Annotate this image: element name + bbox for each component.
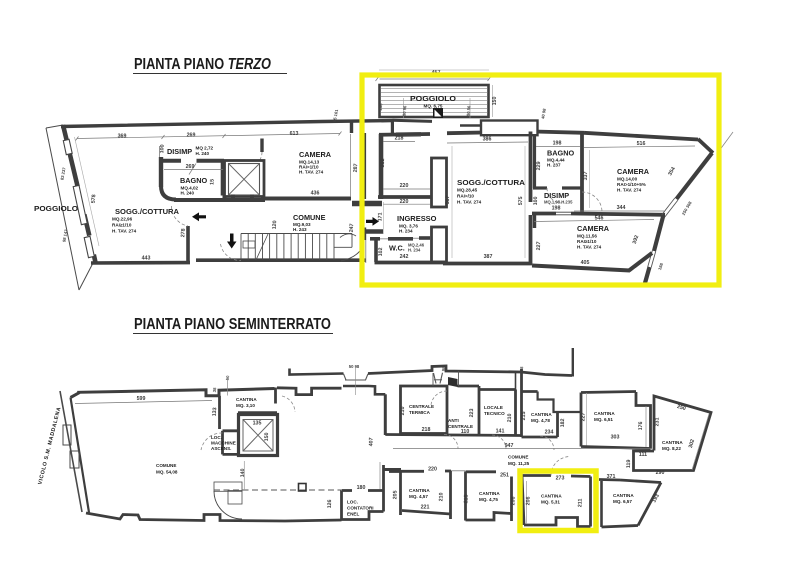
svg-text:MQ. 4,57: MQ. 4,57 [409, 494, 428, 499]
svg-text:947: 947 [505, 443, 514, 449]
svg-text:210: 210 [438, 492, 444, 501]
svg-text:SOGG./COTTURA: SOGG./COTTURA [457, 178, 526, 187]
svg-text:443: 443 [142, 256, 151, 262]
svg-text:229: 229 [536, 161, 542, 170]
svg-text:LOC.: LOC. [347, 500, 358, 505]
svg-text:269: 269 [186, 164, 195, 170]
svg-text:RAI≥1/10: RAI≥1/10 [112, 223, 132, 228]
svg-text:387: 387 [484, 254, 493, 260]
svg-text:MQ.11,56: MQ.11,56 [577, 234, 597, 239]
svg-text:578: 578 [91, 194, 98, 203]
svg-text:405: 405 [581, 260, 590, 266]
svg-text:133: 133 [212, 407, 219, 416]
svg-text:218: 218 [422, 427, 431, 433]
svg-text:MQ. 6,57: MQ. 6,57 [613, 499, 632, 504]
svg-text:126: 126 [327, 499, 333, 508]
svg-text:386: 386 [483, 137, 492, 143]
svg-text:TERMICA: TERMICA [409, 410, 431, 415]
svg-text:COMUNE: COMUNE [156, 463, 176, 468]
svg-text:ASCENS.: ASCENS. [211, 446, 231, 451]
svg-text:369: 369 [118, 134, 127, 140]
svg-text:220: 220 [428, 467, 437, 473]
svg-text:SOGG./COTTURA: SOGG./COTTURA [115, 207, 180, 216]
svg-text:205: 205 [392, 490, 398, 499]
svg-text:H. 240: H. 240 [196, 151, 210, 156]
svg-text:575: 575 [518, 196, 524, 205]
svg-text:MQ. 11,25: MQ. 11,25 [508, 461, 530, 466]
svg-text:599: 599 [137, 396, 146, 402]
svg-text:135: 135 [253, 421, 262, 427]
svg-text:140: 140 [240, 468, 246, 477]
svg-text:COMUNE: COMUNE [508, 455, 528, 460]
svg-text:H. 234: H. 234 [399, 229, 413, 234]
svg-text:80 56: 80 56 [466, 105, 472, 117]
svg-text:180: 180 [357, 485, 366, 491]
svg-text:PIANTA PIANO TERZO: PIANTA PIANO TERZO [134, 56, 271, 73]
svg-text:247: 247 [349, 223, 355, 232]
svg-text:MQ. 4,75: MQ. 4,75 [479, 497, 498, 502]
svg-text:TECNICO: TECNICO [484, 411, 505, 416]
svg-text:CAMERA: CAMERA [299, 150, 332, 159]
svg-text:MQ. 8,22: MQ. 8,22 [662, 446, 681, 451]
svg-text:15: 15 [209, 179, 215, 185]
svg-text:227: 227 [580, 412, 586, 421]
svg-text:H. 234: H. 234 [408, 248, 421, 253]
svg-text:POGGIOLO: POGGIOLO [410, 94, 456, 103]
svg-text:141: 141 [496, 429, 505, 435]
svg-text:286: 286 [378, 103, 384, 111]
svg-text:H. 240: H. 240 [181, 191, 195, 196]
svg-text:INGRESSO: INGRESSO [397, 214, 437, 223]
svg-text:MQ. 3,10: MQ. 3,10 [236, 403, 255, 408]
svg-text:218: 218 [395, 136, 404, 142]
svg-text:242: 242 [400, 254, 409, 260]
svg-text:251: 251 [500, 473, 509, 479]
svg-text:120: 120 [272, 220, 278, 229]
svg-text:H. TAV. 274: H. TAV. 274 [299, 170, 324, 175]
svg-text:50 98: 50 98 [349, 364, 360, 369]
svg-text:371: 371 [607, 474, 616, 480]
svg-text:POGGIOLO: POGGIOLO [34, 204, 78, 213]
svg-text:MQ.28,45: MQ.28,45 [457, 188, 478, 193]
svg-text:MQ. 4,78: MQ. 4,78 [531, 418, 550, 423]
svg-text:303: 303 [611, 435, 620, 441]
svg-text:CAMERA: CAMERA [577, 224, 610, 233]
svg-text:MQ. 5,31: MQ. 5,31 [541, 500, 560, 505]
svg-text:80 96: 80 96 [402, 105, 408, 117]
svg-text:176: 176 [638, 421, 644, 430]
svg-text:150: 150 [264, 432, 270, 441]
svg-text:H. TAV. 274: H. TAV. 274 [577, 245, 602, 250]
svg-text:221: 221 [421, 505, 430, 511]
svg-text:210: 210 [400, 406, 406, 415]
svg-text:CONTATORI: CONTATORI [347, 506, 374, 511]
svg-text:ANTI: ANTI [448, 418, 459, 423]
svg-text:LOC.: LOC. [211, 435, 222, 440]
svg-text:407: 407 [368, 437, 374, 446]
svg-text:171: 171 [377, 212, 383, 221]
svg-text:102: 102 [378, 247, 384, 256]
svg-text:BAGNO: BAGNO [547, 149, 574, 158]
svg-text:RAI>1/10+5%: RAI>1/10+5% [617, 182, 646, 187]
svg-text:206: 206 [510, 496, 516, 505]
svg-text:H. TAV. 274: H. TAV. 274 [457, 200, 482, 205]
svg-text:MQ. 54,08: MQ. 54,08 [156, 470, 178, 475]
svg-text:182: 182 [560, 418, 566, 427]
svg-text:100: 100 [533, 196, 539, 205]
svg-text:CANTINA: CANTINA [541, 494, 562, 499]
svg-text:262: 262 [380, 158, 386, 167]
svg-text:W.C.: W.C. [389, 244, 405, 253]
svg-text:210: 210 [507, 413, 513, 422]
svg-text:278: 278 [180, 228, 186, 237]
svg-text:ENEL: ENEL [347, 512, 359, 517]
svg-text:H. 243: H. 243 [293, 227, 307, 232]
svg-text:290: 290 [656, 470, 665, 476]
svg-text:150: 150 [492, 97, 498, 106]
svg-text:MQ. 6,75: MQ. 6,75 [424, 104, 443, 109]
svg-text:344: 344 [617, 205, 626, 211]
svg-text:100: 100 [159, 144, 165, 153]
svg-text:BAGNO: BAGNO [180, 176, 207, 185]
svg-text:PIANTA PIANO SEMINTERRATO: PIANTA PIANO SEMINTERRATO [134, 316, 331, 333]
svg-text:567: 567 [445, 195, 451, 204]
svg-text:MQ.22,96: MQ.22,96 [112, 217, 133, 222]
svg-text:111: 111 [639, 452, 647, 458]
svg-text:198: 198 [552, 206, 561, 212]
svg-text:CANTINA: CANTINA [409, 488, 430, 493]
svg-text:CAMERA: CAMERA [617, 167, 650, 176]
svg-text:H. TAV. 274: H. TAV. 274 [617, 188, 642, 193]
svg-text:613: 613 [290, 131, 299, 137]
svg-text:287: 287 [353, 163, 359, 172]
svg-text:CENTRALE: CENTRALE [409, 404, 434, 409]
svg-text:RAI>/10: RAI>/10 [457, 194, 474, 199]
svg-text:MQ.14,00: MQ.14,00 [617, 177, 638, 182]
svg-text:DISIMP: DISIMP [167, 147, 192, 156]
svg-text:436: 436 [311, 191, 320, 197]
svg-text:227: 227 [536, 241, 542, 250]
svg-text:CANTINA: CANTINA [613, 493, 634, 498]
svg-text:211: 211 [577, 499, 583, 508]
svg-text:LOCALE: LOCALE [484, 405, 503, 410]
svg-text:CANTINA: CANTINA [594, 411, 615, 416]
svg-text:119: 119 [626, 460, 632, 469]
svg-text:CANTINA: CANTINA [479, 491, 500, 496]
svg-text:CANTINA: CANTINA [662, 440, 683, 445]
svg-text:H. TAV. 274: H. TAV. 274 [112, 229, 137, 234]
svg-text:234: 234 [545, 430, 554, 436]
svg-text:MQ 2,72: MQ 2,72 [196, 146, 214, 151]
svg-text:546: 546 [595, 216, 604, 222]
svg-text:MQ.1,98 H.235: MQ.1,98 H.235 [544, 200, 573, 205]
svg-text:220: 220 [400, 199, 409, 205]
svg-text:516: 516 [637, 141, 646, 147]
svg-text:206: 206 [525, 496, 531, 505]
svg-text:269: 269 [187, 133, 196, 139]
svg-text:COMUNE: COMUNE [293, 213, 326, 222]
svg-text:CANTINA: CANTINA [531, 412, 552, 417]
svg-text:RAI≥1/10: RAI≥1/10 [577, 239, 597, 244]
svg-text:220: 220 [400, 183, 409, 189]
svg-text:MQ. 6,51: MQ. 6,51 [594, 417, 613, 422]
svg-text:337: 337 [583, 171, 589, 180]
svg-text:198: 198 [553, 141, 562, 147]
svg-text:215: 215 [463, 494, 469, 503]
svg-text:223: 223 [469, 408, 475, 417]
svg-text:MACCHINE: MACCHINE [211, 441, 236, 446]
svg-text:273: 273 [556, 476, 565, 482]
svg-text:H. 237: H. 237 [547, 163, 561, 168]
svg-text:CANTINA: CANTINA [236, 397, 257, 402]
svg-text:215: 215 [521, 411, 527, 420]
